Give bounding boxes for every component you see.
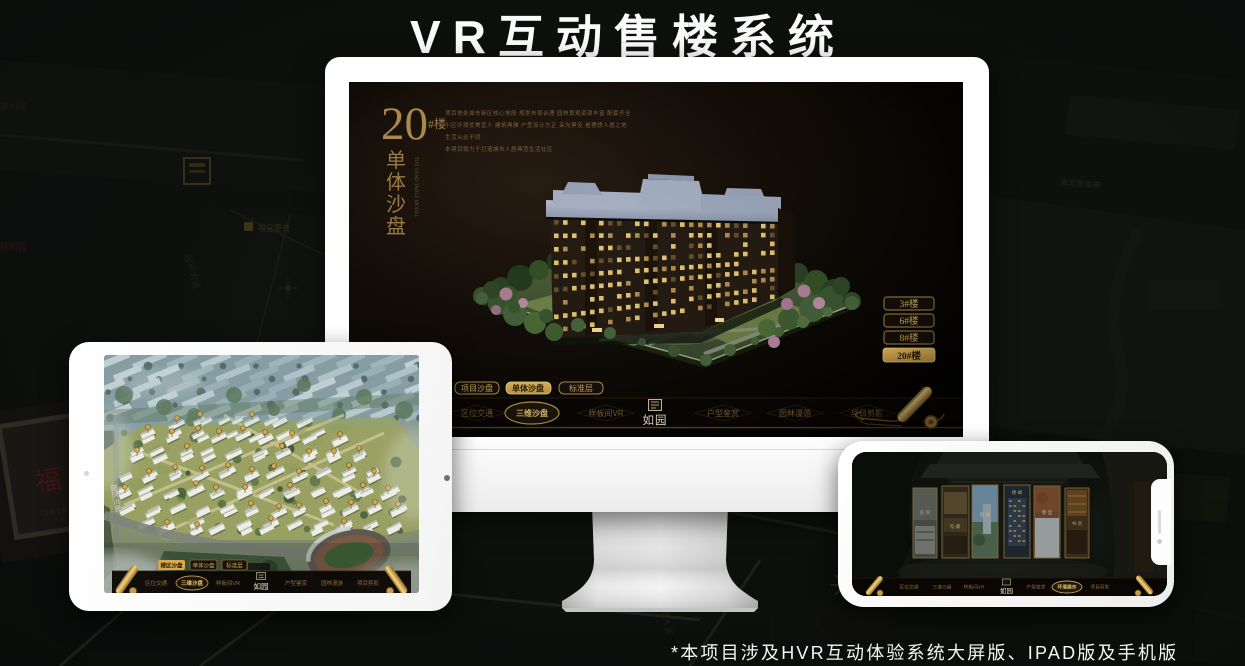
svg-text:园林漫游: 园林漫游 <box>321 579 344 587</box>
svg-text:样板间VR: 样板间VR <box>963 584 985 591</box>
svg-text:样板间VR: 样板间VR <box>216 579 240 587</box>
svg-text:区位交通: 区位交通 <box>899 584 918 591</box>
svg-text:三维沙盘: 三维沙盘 <box>932 584 951 591</box>
svg-text:如园: 如园 <box>254 581 269 591</box>
svg-text:环境展示: 环境展示 <box>1057 584 1076 591</box>
svg-text:户型鉴赏: 户型鉴赏 <box>285 579 308 587</box>
svg-text:如园: 如园 <box>1000 586 1013 595</box>
svg-text:单体沙盘: 单体沙盘 <box>192 562 215 570</box>
svg-text:标准层: 标准层 <box>226 562 243 570</box>
svg-text:楼区沙盘: 楼区沙盘 <box>160 562 183 570</box>
svg-text:区位交通: 区位交通 <box>145 579 168 587</box>
svg-text:福星惠誉: 福星惠誉 <box>258 223 290 233</box>
svg-text:三维沙盘: 三维沙盘 <box>181 579 204 587</box>
svg-text:项目剪影: 项目剪影 <box>1090 584 1109 591</box>
svg-text:颐和园: 颐和园 <box>0 242 27 252</box>
svg-text:德州市: 德州市 <box>0 101 27 112</box>
svg-text:项目剪影: 项目剪影 <box>357 579 380 587</box>
svg-text:户型鉴赏: 户型鉴赏 <box>1026 584 1045 591</box>
